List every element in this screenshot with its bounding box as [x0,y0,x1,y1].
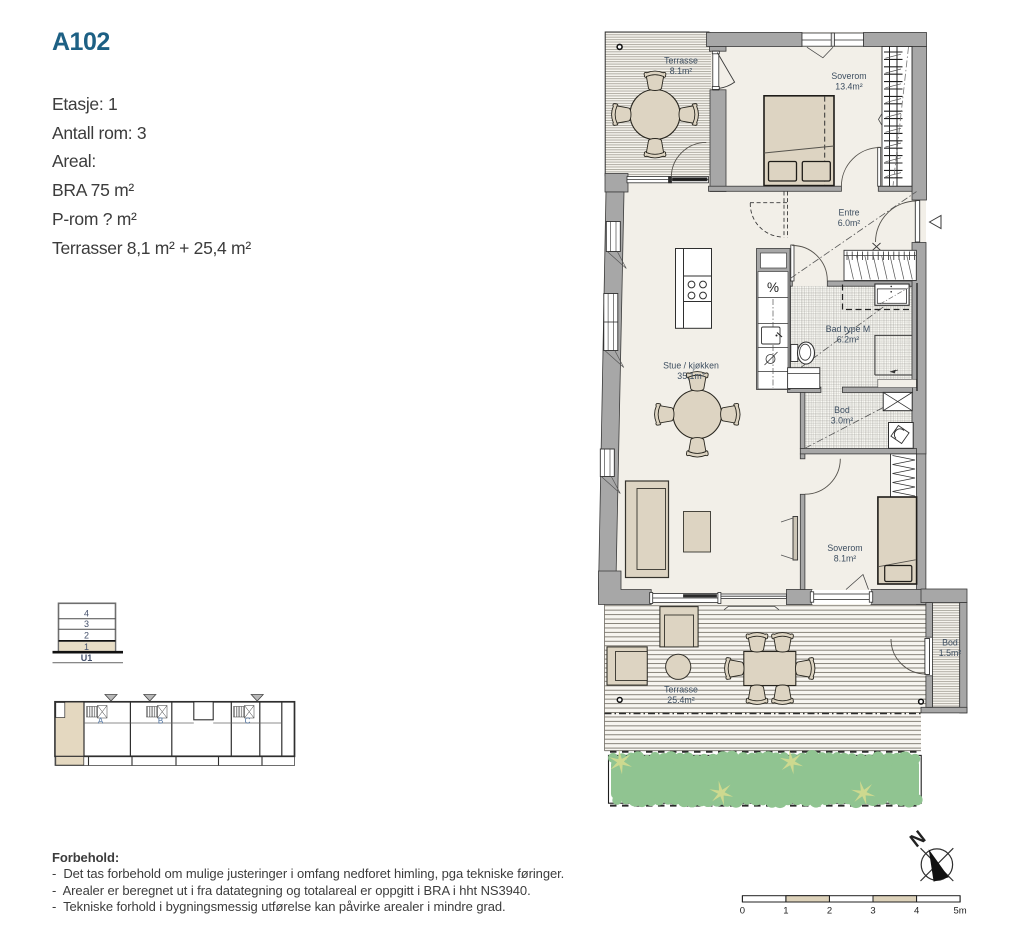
svg-text:Soverom: Soverom [831,71,866,81]
svg-text:Terrasse: Terrasse [664,685,698,695]
svg-text:Bod: Bod [834,405,850,415]
svg-text:A: A [98,717,104,726]
svg-text:6.2m²: 6.2m² [837,335,860,345]
svg-text:Stue / kjøkken: Stue / kjøkken [663,361,719,371]
svg-text:0: 0 [740,906,745,917]
svg-text:3: 3 [870,906,875,917]
svg-text:6.0m²: 6.0m² [838,218,861,228]
svg-text:3: 3 [84,619,89,629]
svg-text:2: 2 [84,630,89,640]
svg-text:4: 4 [914,906,919,917]
svg-text:C: C [245,717,251,726]
svg-text:1: 1 [783,906,788,917]
svg-text:Bod: Bod [942,638,958,648]
svg-text:4: 4 [84,608,89,618]
svg-text:1: 1 [84,642,89,652]
svg-text:8.1m²: 8.1m² [670,66,693,76]
svg-text:Terrasse: Terrasse [664,56,698,66]
svg-text:5m: 5m [953,906,966,917]
svg-text:35,1m²: 35,1m² [677,371,704,381]
svg-text:13.4m²: 13.4m² [835,82,862,92]
svg-text:8.1m²: 8.1m² [834,554,857,564]
svg-text:B: B [158,717,163,726]
svg-text:Bad type M: Bad type M [826,324,871,334]
svg-text:Soverom: Soverom [827,543,862,553]
svg-text:%: % [767,280,779,295]
svg-text:U1: U1 [81,653,93,663]
svg-text:3.0m²: 3.0m² [831,416,854,426]
svg-text:Entre: Entre [838,208,859,218]
svg-text:1.5m²: 1.5m² [939,648,962,658]
svg-text:2: 2 [827,906,832,917]
svg-text:N: N [906,827,930,852]
svg-text:25.4m²: 25.4m² [667,695,694,705]
